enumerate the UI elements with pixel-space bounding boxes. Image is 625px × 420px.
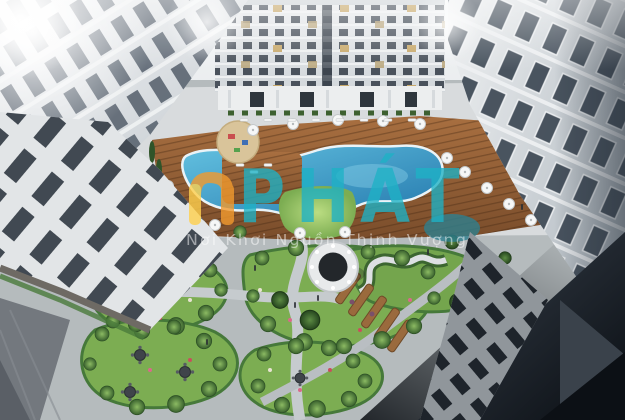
brand-icon-bar-left xyxy=(189,184,201,225)
watermark-tagline: Nơi Khơi Nguồn Thịnh Vượng xyxy=(186,231,468,249)
watermark-brand-text: PHÁT xyxy=(238,152,470,240)
brand-icon-bar-right xyxy=(221,184,234,225)
render-canvas: PHÁT Nơi Khơi Nguồn Thịnh Vượng xyxy=(0,0,625,420)
architectural-render: PHÁT Nơi Khơi Nguồn Thịnh Vượng xyxy=(0,0,625,420)
atmospheric-haze xyxy=(0,0,625,70)
